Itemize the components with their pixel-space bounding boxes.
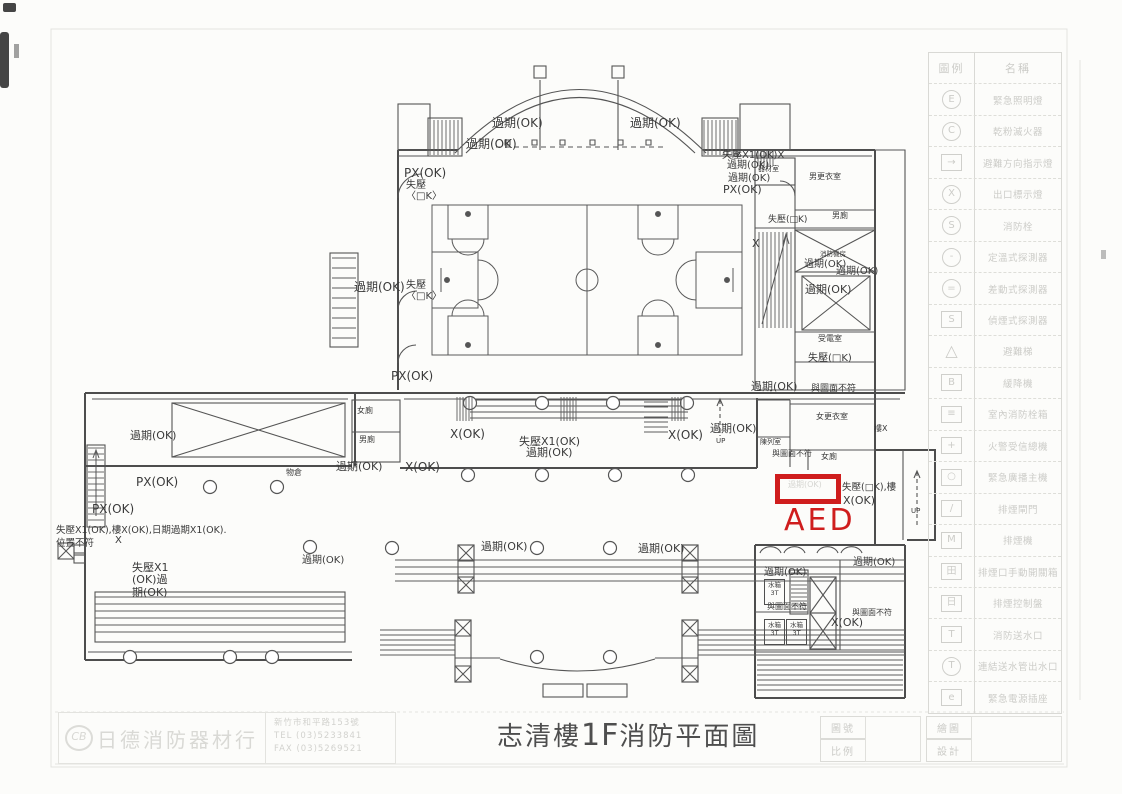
plan-annotation: 過期(OK) <box>130 430 176 442</box>
plan-annotation: 女廁 <box>821 453 837 462</box>
company-fax: FAX (03)5269521 <box>274 743 395 756</box>
legend-symbol-icon: 日 <box>941 595 962 612</box>
title-suffix: 消防平面圖 <box>619 722 759 752</box>
plan-annotation: 失壓(□K) <box>808 353 852 364</box>
legend-symbol-cell: S <box>929 305 975 335</box>
legend-row: S偵煙式探測器 <box>929 304 1061 335</box>
legend-symbol-icon: = <box>942 279 961 298</box>
plan-annotation: PX(OK) <box>404 167 446 180</box>
legend-item-label: 連結送水管出水口 <box>975 659 1061 673</box>
plan-annotation: 過期(OK) <box>836 266 878 277</box>
plan-annotation: 女廁 <box>357 407 373 416</box>
legend-symbol-cell: ≡ <box>929 399 975 429</box>
legend-symbol-cell: + <box>929 431 975 461</box>
plan-annotation: 女更衣室 <box>816 413 848 422</box>
legend-symbol-cell: C <box>929 116 975 146</box>
legend-symbol-cell: M <box>929 525 975 555</box>
title-block-label: 比例 <box>820 739 866 762</box>
title-block-left-value <box>865 716 921 762</box>
plan-annotation: 過期(OK) <box>526 447 572 459</box>
legend-row: S消防栓 <box>929 209 1061 240</box>
plan-annotation: 過期(OK) <box>630 117 681 130</box>
legend-symbol-icon: + <box>941 437 962 454</box>
scanned-floor-plan-page: 過期(OK)過期(OK)過期(OK)失壓X1(OK)X過期(OK)過期(OK)P… <box>0 0 1122 794</box>
legend-row: M排煙機 <box>929 524 1061 555</box>
plan-annotation: PX(OK) <box>92 503 134 516</box>
company-address: 新竹市和平路153號 <box>274 717 395 730</box>
title-floor: 1F <box>581 718 619 753</box>
legend-item-label: 排煙閘門 <box>975 502 1061 516</box>
plan-annotation: 過期(OK) <box>853 557 895 568</box>
legend-symbol-cell: → <box>929 147 975 177</box>
plan-annotation: 過期(OK) <box>751 381 797 393</box>
legend-symbol-icon: ○ <box>941 469 962 486</box>
legend-symbol-icon: e <box>941 689 962 706</box>
plan-annotation: 〈□K〉 <box>406 291 442 302</box>
plan-annotation: X(OK) <box>668 429 703 442</box>
legend-item-label: 緊急電源插座 <box>975 691 1061 705</box>
legend-row: E緊急照明燈 <box>929 83 1061 114</box>
plan-annotation: 男廁 <box>832 212 848 221</box>
equipment-legend: 圖例名稱E緊急照明燈C乾粉滅火器→避難方向指示燈X出口標示燈S消防栓-定溫式探測… <box>928 52 1062 714</box>
legend-symbol-icon: - <box>942 248 961 267</box>
water-tank-box: 水箱 3T <box>786 619 807 645</box>
plan-annotation: UP <box>716 438 725 446</box>
water-tank-box: 水箱 3T <box>764 619 785 645</box>
legend-symbol-icon: 田 <box>941 563 962 580</box>
legend-row: X出口標示燈 <box>929 178 1061 209</box>
legend-row: ○緊急廣播主機 <box>929 461 1061 492</box>
title-block-right: 繪圖設計 <box>926 716 972 762</box>
legend-row: →避難方向指示燈 <box>929 146 1061 177</box>
aed-label: AED <box>784 503 856 538</box>
plan-annotation: 失壓(□K),樓 <box>842 483 896 494</box>
aed-marker <box>775 474 841 504</box>
legend-item-label: 緩降機 <box>975 376 1061 390</box>
plan-annotation: 陳列室 <box>760 439 781 447</box>
title-block-label: 繪圖 <box>926 716 972 739</box>
plan-annotation: 樓X <box>874 425 887 434</box>
legend-item-label: 乾粉滅火器 <box>975 124 1061 138</box>
legend-symbol-cell: = <box>929 273 975 303</box>
plan-annotation: 過期(OK) <box>354 281 405 294</box>
legend-item-label: 室內消防栓箱 <box>975 407 1061 421</box>
title-block-left: 圖號比例 <box>820 716 866 762</box>
legend-row: △避難梯 <box>929 335 1061 366</box>
legend-symbol-icon: M <box>941 532 962 549</box>
plan-annotation: 〈□K〉 <box>406 191 442 202</box>
legend-item-label: 排煙口手動開關箱 <box>975 565 1061 579</box>
legend-row: e緊急電源插座 <box>929 681 1061 712</box>
legend-symbol-cell: T <box>929 651 975 681</box>
plan-annotation: 過期(OK) <box>492 117 543 130</box>
legend-symbol-icon: △ <box>945 343 957 359</box>
legend-symbol-icon: → <box>941 154 962 171</box>
plan-annotation: X(OK) <box>405 461 440 474</box>
title-block-right-value <box>971 716 1062 762</box>
legend-symbol-cell: ○ <box>929 462 975 492</box>
legend-symbol-cell: B <box>929 368 975 398</box>
legend-symbol-icon: T <box>941 626 962 643</box>
plan-annotation: PX(OK) <box>723 184 762 196</box>
legend-symbol-cell: 田 <box>929 557 975 587</box>
plan-annotation: 男廁 <box>359 436 375 445</box>
company-name-block: CB 日德消防器材行 <box>59 713 266 763</box>
legend-row: 田排煙口手動開關箱 <box>929 556 1061 587</box>
legend-item-label: 出口標示燈 <box>975 187 1061 201</box>
legend-symbol-cell: e <box>929 682 975 712</box>
legend-symbol-cell: △ <box>929 336 975 366</box>
legend-item-label: 火警受信總機 <box>975 439 1061 453</box>
plan-annotation: 男更衣室 <box>809 173 841 182</box>
plan-annotation: PX(OK) <box>136 476 178 489</box>
legend-item-label: 排煙機 <box>975 533 1061 547</box>
legend-symbol-icon: ≡ <box>941 406 962 423</box>
plan-annotation: 失壓 <box>406 280 426 291</box>
plan-annotation: 受電室 <box>818 335 842 344</box>
title-block-label: 設計 <box>926 739 972 762</box>
company-name: 日德消防器材行 <box>97 724 258 753</box>
legend-row: -定溫式探測器 <box>929 241 1061 272</box>
legend-symbol-icon: / <box>941 500 962 517</box>
plan-annotation: 失壓 <box>406 180 426 191</box>
legend-symbol-icon: S <box>942 216 961 235</box>
plan-annotation: 過期(OK) <box>805 284 851 296</box>
plan-annotation: 過期(OK) <box>336 461 382 473</box>
legend-row: T連結送水管出水口 <box>929 650 1061 681</box>
legend-item-label: 緊急廣播主機 <box>975 470 1061 484</box>
legend-symbol-icon: C <box>942 122 961 141</box>
title-block-label: 圖號 <box>820 716 866 739</box>
plan-annotation: 位置不符 <box>56 539 94 550</box>
legend-row: +火警受信總機 <box>929 430 1061 461</box>
company-contact: 新竹市和平路153號 TEL (03)5233841 FAX (03)52695… <box>266 713 395 763</box>
plan-annotation: 失壓(□K) <box>768 215 807 225</box>
legend-symbol-icon: S <box>941 311 962 328</box>
plan-annotation: 過期(OK) <box>710 423 756 435</box>
plan-annotation: 過期(OK) <box>638 543 684 555</box>
legend-symbol-icon: B <box>941 374 962 391</box>
plan-annotation: X(OK) <box>450 428 485 441</box>
legend-row: T消防送水口 <box>929 618 1061 649</box>
legend-header-symbol: 圖例 <box>929 53 975 83</box>
legend-row: /排煙閘門 <box>929 493 1061 524</box>
plan-annotation: 與圖面不符 <box>811 384 856 394</box>
legend-row: C乾粉滅火器 <box>929 115 1061 146</box>
plan-annotation: 過期(OK) <box>302 555 344 566</box>
plan-annotation: 失壓X1 (OK)過 期(OK) <box>132 562 169 599</box>
drawing-title: 志清樓1F消防平面圖 <box>497 716 759 753</box>
plan-annotation: 過期(OK) <box>764 567 806 578</box>
plan-annotation: 過期(OK) <box>481 541 527 553</box>
legend-item-label: 差動式探測器 <box>975 282 1061 296</box>
legend-symbol-cell: / <box>929 494 975 524</box>
legend-item-label: 排煙控制盤 <box>975 596 1061 610</box>
legend-row: =差動式探測器 <box>929 272 1061 303</box>
legend-symbol-cell: 日 <box>929 588 975 618</box>
legend-item-label: 緊急照明燈 <box>975 93 1061 107</box>
legend-symbol-cell: X <box>929 179 975 209</box>
plan-annotation: 過期(OK) <box>466 138 517 151</box>
legend-symbol-cell: T <box>929 619 975 649</box>
legend-item-label: 偵煙式探測器 <box>975 313 1061 327</box>
company-logo-icon: CB <box>65 725 93 751</box>
legend-row: B緩降機 <box>929 367 1061 398</box>
plan-annotation: 物倉 <box>286 469 302 478</box>
legend-row: ≡室內消防栓箱 <box>929 398 1061 429</box>
legend-symbol-cell: E <box>929 84 975 114</box>
legend-symbol-cell: - <box>929 242 975 272</box>
plan-annotation: 失壓X1(OK),樓X(OK),日期過期X1(OK). <box>56 526 227 537</box>
company-stamp: CB 日德消防器材行 新竹市和平路153號 TEL (03)5233841 FA… <box>58 712 396 764</box>
plan-annotation: X <box>115 535 122 546</box>
company-tel: TEL (03)5233841 <box>274 730 395 743</box>
legend-item-label: 避難方向指示燈 <box>975 156 1061 170</box>
legend-item-label: 避難梯 <box>975 344 1061 358</box>
plan-annotation: PX(OK) <box>391 370 433 383</box>
plan-annotation: X <box>752 238 760 250</box>
plan-annotation: 與圖面不符 <box>772 450 812 459</box>
legend-symbol-cell: S <box>929 210 975 240</box>
plan-annotation: UP <box>911 508 920 516</box>
legend-item-label: 消防栓 <box>975 219 1061 233</box>
water-tank-box: 水箱 3T <box>764 579 785 605</box>
legend-header-name: 名稱 <box>975 60 1061 76</box>
title-building: 志清樓 <box>497 722 581 752</box>
legend-symbol-icon: T <box>942 657 961 676</box>
legend-item-label: 消防送水口 <box>975 628 1061 642</box>
plan-annotation: 器材室 <box>758 166 779 174</box>
legend-item-label: 定溫式探測器 <box>975 250 1061 264</box>
legend-symbol-icon: E <box>942 90 961 109</box>
legend-header: 圖例名稱 <box>929 53 1061 83</box>
legend-symbol-icon: X <box>942 185 961 204</box>
plan-annotation: X(OK) <box>831 617 863 629</box>
legend-row: 日排煙控制盤 <box>929 587 1061 618</box>
plan-annotation: 消防機房 <box>820 251 846 258</box>
